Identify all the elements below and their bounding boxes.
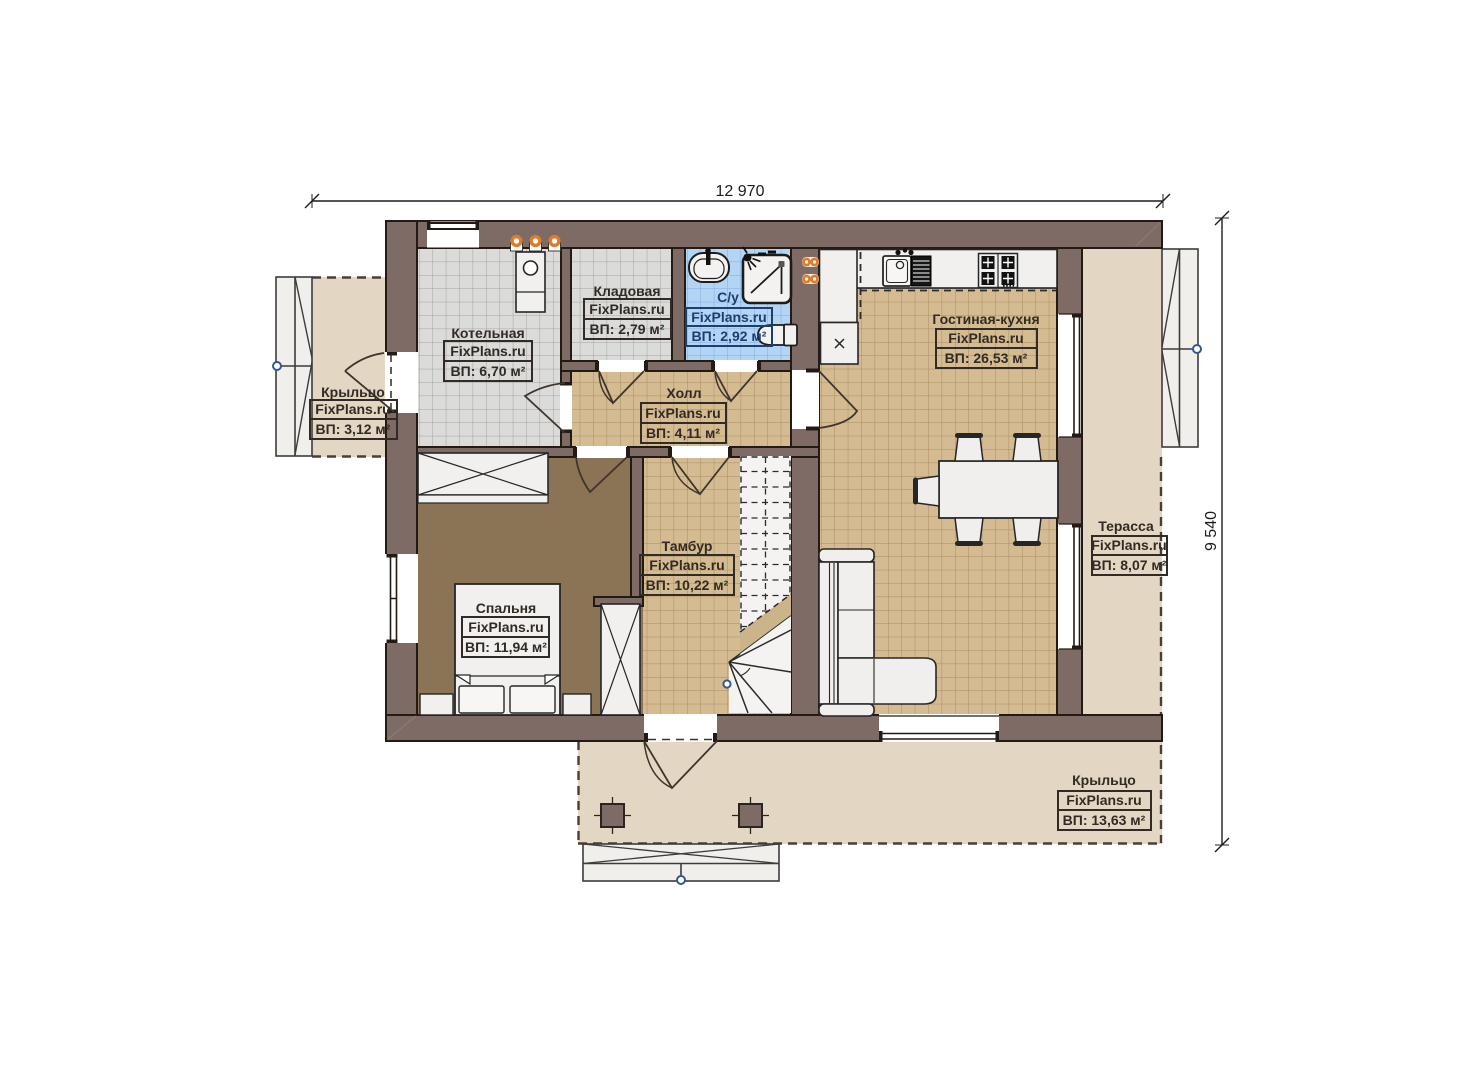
svg-text:9 540: 9 540 — [1203, 511, 1220, 551]
svg-text:12 970: 12 970 — [716, 183, 765, 200]
svg-text:FixPlans.ru: FixPlans.ru — [691, 309, 766, 325]
svg-text:FixPlans.ru: FixPlans.ru — [589, 301, 664, 317]
svg-text:ВП: 3,12 м²: ВП: 3,12 м² — [316, 421, 391, 437]
svg-text:FixPlans.ru: FixPlans.ru — [315, 401, 390, 417]
svg-text:ВП: 11,94 м²: ВП: 11,94 м² — [465, 639, 547, 655]
svg-text:FixPlans.ru: FixPlans.ru — [468, 619, 543, 635]
svg-text:С/у: С/у — [717, 289, 739, 305]
svg-text:Терасса: Терасса — [1098, 518, 1154, 534]
svg-text:ВП: 2,92 м²: ВП: 2,92 м² — [692, 328, 767, 344]
svg-text:Спальня: Спальня — [476, 600, 536, 616]
svg-text:ВП: 6,70 м²: ВП: 6,70 м² — [451, 363, 526, 379]
svg-text:ВП: 4,11 м²: ВП: 4,11 м² — [646, 425, 720, 441]
svg-text:FixPlans.ru: FixPlans.ru — [1091, 537, 1166, 553]
svg-text:ВП: 8,07 м²: ВП: 8,07 м² — [1092, 557, 1167, 573]
svg-text:Тамбур: Тамбур — [662, 538, 713, 554]
svg-text:FixPlans.ru: FixPlans.ru — [1066, 792, 1141, 808]
svg-text:Крыльцо: Крыльцо — [321, 384, 385, 400]
svg-text:FixPlans.ru: FixPlans.ru — [645, 405, 720, 421]
svg-text:FixPlans.ru: FixPlans.ru — [649, 557, 724, 573]
svg-text:FixPlans.ru: FixPlans.ru — [948, 330, 1023, 346]
svg-text:Кладовая: Кладовая — [593, 283, 660, 299]
svg-text:Гостиная-кухня: Гостиная-кухня — [932, 311, 1039, 327]
svg-text:ВП: 26,53 м²: ВП: 26,53 м² — [945, 350, 1028, 366]
svg-text:ВП: 2,79 м²: ВП: 2,79 м² — [590, 321, 665, 337]
svg-text:ВП: 10,22 м²: ВП: 10,22 м² — [646, 577, 729, 593]
svg-text:FixPlans.ru: FixPlans.ru — [450, 343, 525, 359]
svg-text:Холл: Холл — [666, 385, 701, 401]
svg-text:Котельная: Котельная — [451, 325, 524, 341]
svg-text:ВП: 13,63 м²: ВП: 13,63 м² — [1063, 812, 1146, 828]
svg-text:Крыльцо: Крыльцо — [1072, 772, 1136, 788]
